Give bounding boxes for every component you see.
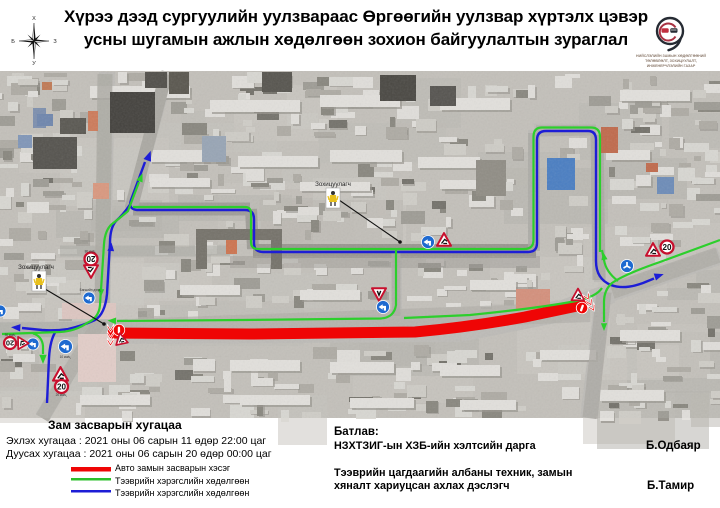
svg-text:30 км/ц: 30 км/ц	[5, 333, 16, 337]
svg-text:10 км/ц: 10 км/ц	[60, 355, 71, 359]
svg-text:ИНЖЕНЕРЧЛЭЛИЙН ГАЗАР: ИНЖЕНЕРЧЛЭЛИЙН ГАЗАР	[647, 64, 696, 68]
svg-text:У: У	[32, 61, 36, 67]
svg-text:20: 20	[57, 382, 67, 391]
svg-text:З: З	[53, 39, 57, 45]
svg-text:80 км/ц: 80 км/ц	[85, 250, 96, 254]
svg-text:20: 20	[6, 338, 14, 347]
svg-text:НИЙСЛЭЛИЙН ЗАМЫН ХӨДӨЛГӨӨНИЙ: НИЙСЛЭЛИЙН ЗАМЫН ХӨДӨЛГӨӨНИЙ	[636, 54, 706, 58]
svg-text:Зохицуулагч: Зохицуулагч	[18, 264, 54, 271]
svg-text:ТӨЛӨВЛӨЛТ, ЗОХИЦУУЛАЛТ,: ТӨЛӨВЛӨЛТ, ЗОХИЦУУЛАЛТ,	[645, 59, 697, 63]
svg-text:Зохицуулагч: Зохицуулагч	[315, 181, 351, 188]
svg-text:20: 20	[86, 254, 96, 263]
svg-text:20 км/ц: 20 км/ц	[56, 393, 67, 397]
svg-text:20: 20	[662, 243, 672, 252]
svg-text:Х: Х	[32, 16, 36, 22]
svg-text:Б: Б	[11, 39, 15, 45]
svg-text:Багшийн дээд: Багшийн дээд	[80, 288, 101, 292]
